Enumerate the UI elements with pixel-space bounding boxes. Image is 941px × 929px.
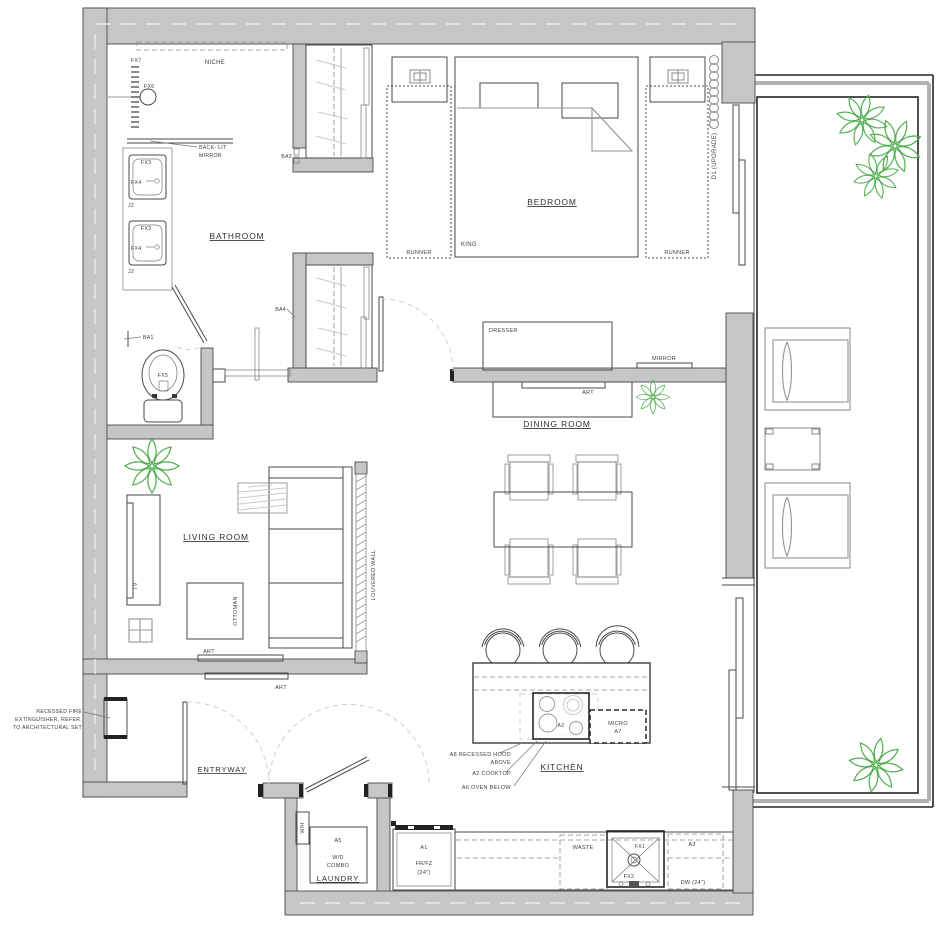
wall-right-bottom — [733, 790, 753, 893]
fx3-label: FX3 — [141, 226, 151, 232]
wall-closet1-left — [293, 44, 306, 148]
microwave: MICRO A7 — [590, 710, 646, 743]
combo-label: COMBO — [327, 863, 350, 869]
wall-entry-pier-left — [263, 783, 303, 798]
fire-note-1: RECESSED FIRE — [36, 709, 82, 715]
niche-label: NICHE — [205, 60, 225, 66]
living-room-label: LIVING ROOM — [183, 532, 249, 542]
frfz-label: FR/FZ — [415, 861, 432, 867]
dw-label: DW (24") — [681, 880, 706, 886]
fire-note-3: TO ARCHITECTURAL SET — [13, 725, 83, 731]
j2-label: J2 — [128, 203, 134, 209]
fridge-size-label: (24") — [417, 870, 430, 876]
wd-label: W/D — [332, 855, 344, 861]
wall-entry-bottom — [83, 782, 187, 797]
hood-note-1: A8 RECESSED HOOD — [450, 752, 511, 758]
a1-label: A1 — [420, 845, 427, 851]
a2-label: A2 — [558, 723, 565, 729]
ba3-label: BA3 — [281, 154, 292, 160]
fx3-label: FX3 — [141, 160, 151, 166]
art-label: ART — [582, 390, 594, 396]
wall-laundry-right — [377, 798, 390, 893]
oven-note: A6 OVEN BELOW — [462, 785, 512, 791]
micro-label: MICRO — [608, 721, 628, 727]
louvered-wall-label: LOUVERED WALL — [371, 550, 377, 600]
jamb-mark — [258, 784, 263, 797]
dresser-label: DRESSER — [489, 328, 518, 334]
fire-note-2: EXTINGUISHER, REFER. — [15, 717, 82, 723]
wall-closet1-bottom — [293, 158, 373, 172]
tv-label: TV — [133, 582, 139, 590]
floor-plan-drawing: NICHE FX7 FX6 BACK- LIT MIRROR FX3 FX4 J… — [0, 0, 941, 929]
wall-closet2-left — [293, 253, 306, 375]
wall-left — [83, 8, 107, 797]
jamb-mark — [388, 784, 392, 797]
wh-label: W/H — [300, 823, 306, 834]
fx1-label: FX1 — [635, 844, 645, 850]
art-label: ART — [203, 649, 215, 655]
j2-label: J2 — [128, 269, 134, 275]
jamb-mark — [364, 784, 368, 797]
a5-label: A5 — [334, 838, 341, 844]
fx2-label: FX2 — [624, 874, 634, 880]
wall-right-mid — [726, 313, 753, 578]
wall-toilet-right — [201, 348, 213, 425]
wall-closet2-bottom — [288, 368, 377, 382]
hood-note-2: ABOVE — [491, 760, 511, 766]
bathroom-label: BATHROOM — [210, 231, 265, 241]
runner-left-label: RUNNER — [406, 250, 431, 256]
fx7-label: FX7 — [131, 58, 141, 64]
fx4-label: FX4 — [131, 246, 141, 252]
dining-room-label: DINING ROOM — [523, 419, 591, 429]
d1-upgrade-label: D1 (UPGRADE) — [712, 133, 718, 180]
mirror-label: MIRROR — [652, 356, 676, 362]
wall-toilet-bottom — [107, 425, 213, 439]
art-label: ART — [275, 685, 287, 691]
a3-label: A3 — [688, 842, 695, 848]
floor-plan: NICHE FX7 FX6 BACK- LIT MIRROR FX3 FX4 J… — [0, 0, 941, 929]
runner-right-label: RUNNER — [664, 250, 689, 256]
entryway-label: ENTRYWAY — [197, 765, 246, 774]
waste-label: WASTE — [573, 845, 594, 851]
backlit-mirror-label-1: BACK- LIT — [199, 145, 227, 151]
ba4-label: BA4 — [275, 307, 286, 313]
fx4-label: FX4 — [131, 180, 141, 186]
bedroom-label: BEDROOM — [527, 197, 577, 207]
laundry-label: LAUNDRY — [317, 874, 359, 883]
backlit-mirror-label-2: MIRROR — [199, 153, 222, 159]
wall-top-right — [722, 42, 755, 103]
king-label: KING — [461, 242, 477, 248]
a7-label: A7 — [614, 729, 621, 735]
wall-top — [83, 8, 755, 44]
ba1-label: BA1 — [143, 335, 154, 341]
kitchen-label: KITCHEN — [540, 762, 583, 772]
cooktop-note: A2 COOKTOP — [472, 771, 511, 777]
fx5-label: FX5 — [158, 373, 168, 379]
jamb-mark — [299, 784, 303, 797]
ottoman-label: OTTOMAN — [233, 596, 239, 626]
